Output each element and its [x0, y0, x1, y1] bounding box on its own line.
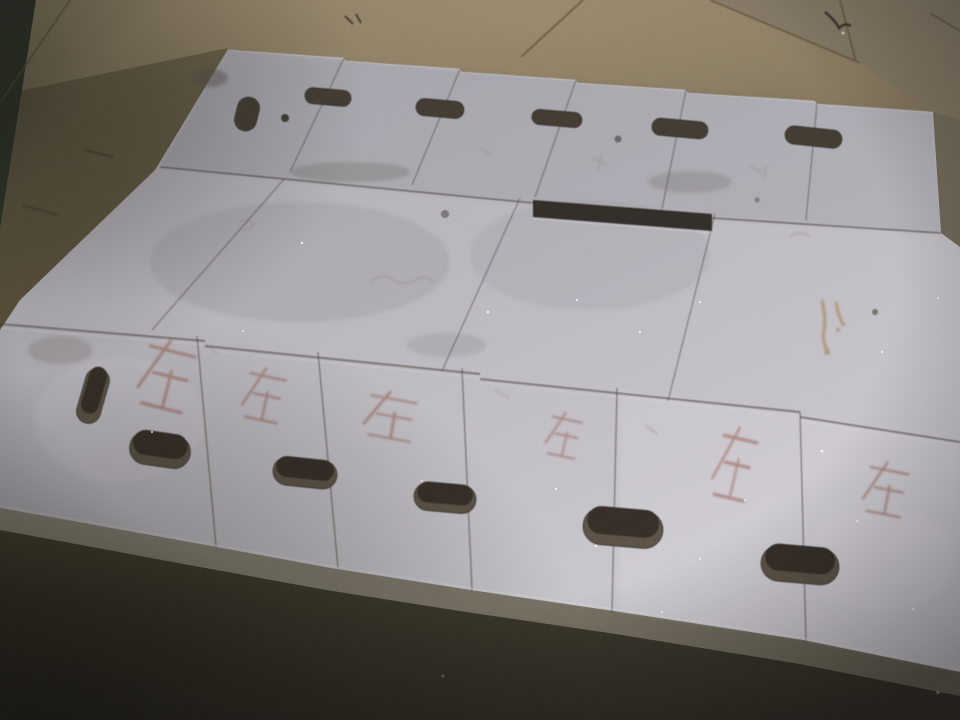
- photo-grain-overlay: [0, 0, 960, 720]
- photo-canvas: 在 在 在 在 在 在: [0, 0, 960, 720]
- photo: 在 在 在 在 在 在: [0, 0, 960, 720]
